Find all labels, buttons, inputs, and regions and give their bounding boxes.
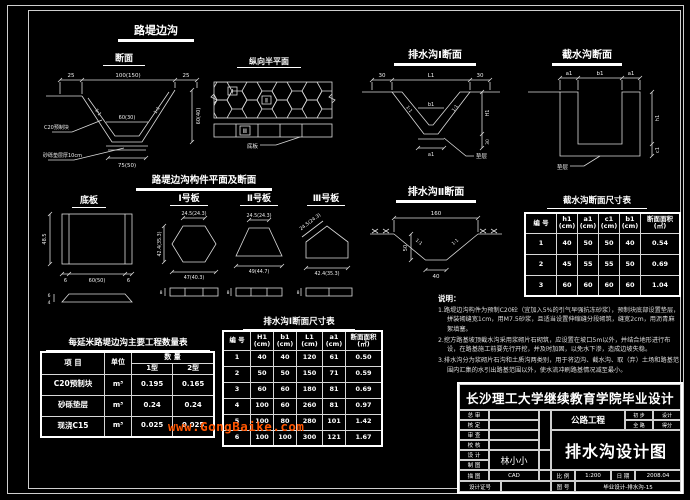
cell: 40	[557, 233, 578, 254]
cell: 0.195	[132, 374, 173, 395]
table-row: 36060180810.69	[223, 382, 382, 398]
drawing-paishuigou1-section: 30 L1 30 b1 a1 H1 30 1:1 1:1 垫层	[362, 68, 500, 170]
cell: 2	[223, 366, 251, 382]
tb-cert-value	[501, 481, 551, 492]
cell: 0.54	[641, 233, 681, 254]
table-row: 1405050400.54	[525, 233, 680, 254]
dim-bottom: 42.4(35.3)	[314, 271, 339, 277]
note-item-2: 2.挖方路基坡顶截水沟采用浆砌片石砌筑，应设置在坡口5m以外，并结合地形进行布设…	[438, 336, 680, 355]
title-duanmian: 断面	[103, 54, 145, 66]
cell: 0.69	[346, 382, 383, 398]
cell: 71	[323, 366, 346, 382]
dim-depth: 50	[403, 245, 409, 251]
cell: 120	[297, 350, 323, 366]
dim-top-right: 30	[477, 73, 484, 79]
cell: 0.50	[346, 350, 383, 366]
col-header: b1 (cm)	[620, 213, 641, 233]
cell: 81	[323, 398, 346, 414]
dim-sec: 8	[227, 290, 230, 296]
col-header: a1 (cm)	[323, 331, 346, 350]
tb-stage-value-1: 设计	[653, 410, 681, 420]
dim-bottom: 75(50)	[118, 163, 136, 169]
dim-height: 60(40)	[196, 108, 202, 125]
tb-date-label: 日 期	[611, 470, 635, 481]
label-precast-block: C20预制块	[44, 124, 69, 131]
notes-title: 说明：	[438, 293, 680, 304]
cell: 0.97	[346, 398, 383, 414]
dim-sec2: 4	[48, 300, 51, 306]
cell: 0.24	[173, 395, 214, 416]
title-block: 长沙理工大学继续教育学院毕业设计 总 审 核 定 审 查 校 核 设 计 制 图…	[457, 382, 683, 494]
dim-a1-left: a1	[566, 71, 573, 77]
cell: 81	[323, 382, 346, 398]
dim-h1: h1	[655, 115, 661, 121]
cell: 55	[599, 254, 620, 275]
tb-scale-label: 比 例	[551, 470, 575, 481]
dim-height-H1: H1	[485, 110, 491, 117]
cell: 150	[297, 366, 323, 382]
dim-top-mid: L1	[428, 73, 435, 79]
col-header: L1 (cm)	[297, 331, 323, 350]
dim-mid: 60(50)	[89, 278, 106, 284]
note-item-3: 3.排水沟分为浆砌片石沟和土质沟两类别，用于将边沟、截水沟、取（弃）土场和路基范…	[438, 356, 680, 375]
cell: 4	[223, 398, 251, 414]
tb-stage-label-2: 全 路	[625, 420, 653, 430]
cell: 50	[620, 254, 641, 275]
watermark-url: www.GongBaike.com	[168, 419, 304, 434]
title-paishuigou2-duanmian: 排水沟Ⅱ断面	[396, 187, 476, 201]
cell: 45	[557, 254, 578, 275]
cell: 40	[274, 350, 297, 366]
note-item-1: 1.路堤边沟构件为预制C20砼（宜加入5%的引气早强抗冻砂浆），预制块底部设置垫…	[438, 306, 680, 334]
col-header: 断面面积 (㎡)	[346, 331, 383, 350]
title-jieshuigou-table: 截水沟断面尺寸表	[547, 197, 647, 209]
dim-c1: c1	[655, 147, 661, 153]
dim-sec: 8	[160, 290, 163, 296]
tb-designer-name: 林小小	[489, 450, 539, 470]
cell: 61	[323, 350, 346, 366]
title-paishuigou1-duanmian: 排水沟Ⅰ断面	[394, 50, 476, 64]
cell: 0.24	[132, 395, 173, 416]
cell: 1	[525, 233, 557, 254]
cell: 现浇C15	[41, 416, 105, 437]
dim-bottom-a1: a1	[428, 152, 434, 158]
notes-block: 说明： 1.路堤边沟构件为预制C20砼（宜加入5%的引气早强抗冻砂浆），预制块底…	[438, 293, 680, 375]
dim-top-mid: 100(150)	[115, 73, 140, 79]
tb-label-sheji: 设 计	[459, 450, 489, 460]
cell: 0.165	[173, 374, 214, 395]
cell: m³	[105, 374, 132, 395]
tb-label-heding: 核 定	[459, 420, 489, 430]
table-row: 14040120610.50	[223, 350, 382, 366]
label-gravel-bed: 砂砾垫层厚10cm	[43, 152, 82, 159]
tb-no-value: 毕业设计-排水沟-15	[575, 481, 681, 492]
cell: 40	[620, 233, 641, 254]
col-header-item: 项 目	[41, 352, 105, 374]
drawing-ban1: 24.5(24.3) 42.4(35.3) 47(40.3) 8	[158, 206, 222, 306]
tb-value-empty-1	[489, 410, 539, 420]
tb-value-empty-2	[489, 420, 539, 430]
tb-spare-col-top	[539, 410, 551, 450]
title-quantity-table: 每延米路堤边沟主要工程数量表	[46, 339, 210, 351]
tb-date-value: 2008.04	[635, 470, 681, 481]
cell: 0.025	[132, 416, 173, 437]
title-goujian-pingmian: 路堤边沟构件平面及断面	[136, 176, 272, 189]
cell: 2	[525, 254, 557, 275]
dim-bottom: 40	[433, 274, 440, 280]
tb-cad-value: CAD	[489, 470, 539, 481]
tb-spare-col-mid	[539, 450, 551, 470]
leader-bedding: 垫层	[476, 152, 488, 160]
title-paishuigou1-table: 排水沟Ⅰ断面尺寸表	[243, 318, 355, 330]
dim-left6: 6	[64, 278, 67, 284]
cell: 50	[599, 233, 620, 254]
cell: 50	[578, 233, 599, 254]
dim-b1: b1	[597, 71, 604, 77]
tb-no-label: 图 号	[551, 481, 575, 492]
col-header-qty: 数 量	[132, 352, 215, 363]
dim-bottom: 47(40.3)	[184, 275, 205, 281]
col-header: 断面面积 (㎡)	[641, 213, 681, 233]
cell: 1.42	[346, 414, 383, 430]
dim-a1-right: a1	[628, 71, 635, 77]
cell: 3	[223, 382, 251, 398]
cell: 40	[251, 350, 274, 366]
col-header: H1 (cm)	[251, 331, 274, 350]
drawing-sheet: 路堤边沟 断面 纵向半平面 排水沟Ⅰ断面 截水沟断面 路堤边沟构件平面及断面 底…	[0, 0, 690, 500]
table-row: 25050150710.59	[223, 366, 382, 382]
cell: 260	[297, 398, 323, 414]
dim-height: 48.5	[42, 233, 48, 244]
dim-bottom: 49(44.7)	[249, 269, 270, 275]
title-jieshuigou-duanmian: 截水沟断面	[552, 50, 622, 64]
cell: 60	[274, 382, 297, 398]
table-row: 410060260810.97	[223, 398, 382, 414]
table-row: 2455555500.69	[525, 254, 680, 275]
title-luti-biangou: 路堤边沟	[118, 25, 194, 40]
slope-left: 1:1	[414, 238, 424, 247]
cell: 0.69	[641, 254, 681, 275]
dim-top: 24.5(24.3)	[181, 211, 206, 217]
plan-marker-1: Ⅰ	[232, 89, 234, 96]
cell: 60	[274, 398, 297, 414]
dim-height-2: 30	[485, 139, 491, 145]
tb-label-miaotu: 描 图	[459, 470, 489, 481]
tb-stage-label-1: 初 步	[625, 410, 653, 420]
dim-top: 24.5(24.3)	[246, 213, 271, 219]
dim-top: 160	[431, 211, 442, 217]
plan-marker-2: Ⅱ	[265, 98, 268, 105]
slope-right: 1:1	[451, 238, 461, 247]
dim-top-left: 25	[68, 73, 75, 79]
tb-label-shencha: 审 查	[459, 430, 489, 440]
drawing-ban2: 24.5(24.3) 49(44.7) 8	[228, 206, 290, 306]
dim-inner: 60(30)	[119, 115, 136, 121]
drawing-luti-biangou-plan: Ⅰ Ⅱ Ⅲ 底板	[210, 80, 338, 150]
title-ban2: Ⅱ号板	[240, 194, 278, 206]
cell: m³	[105, 416, 132, 437]
tb-value-empty-4	[489, 440, 539, 450]
dim-top: 24.5(24.3)	[299, 212, 323, 232]
plan-leader-diban: 底板	[247, 142, 259, 150]
cell: 50	[274, 366, 297, 382]
table-row: C20预制块m³0.1950.165	[41, 374, 214, 395]
tb-scale-value: 1:200	[575, 470, 611, 481]
col-header-type2: 2型	[173, 363, 214, 374]
plan-marker-3: Ⅲ	[243, 128, 247, 135]
col-header: c1 (cm)	[599, 213, 620, 233]
cell: 1	[223, 350, 251, 366]
tb-project: 公路工程	[551, 410, 625, 430]
leader-bedding: 垫层	[557, 163, 569, 171]
cell: 50	[251, 366, 274, 382]
dim-top-left: 30	[379, 73, 386, 79]
col-header-unit: 单位	[105, 352, 132, 374]
drawing-luti-biangou-section: 25 100(150) 25 60(30) 75(50) 60(40) 1:1 …	[42, 66, 210, 172]
cell: 121	[323, 430, 346, 446]
cell: 0.59	[346, 366, 383, 382]
jieshuigou-dimension-table: 编 号 h1 (cm) a1 (cm) c1 (cm) b1 (cm) 断面面积…	[524, 212, 681, 297]
dim-top-right: 25	[183, 73, 190, 79]
dim-right6: 6	[127, 278, 130, 284]
tb-drawing-title: 排水沟设计图	[551, 430, 681, 470]
tb-spare-col-bot	[539, 470, 551, 481]
drawing-jieshuigou-section: a1 b1 a1 h1 c1 垫层	[520, 66, 672, 174]
dim-sec: 8	[297, 290, 300, 296]
col-header: a1 (cm)	[578, 213, 599, 233]
drawing-paishuigou2-section: 160 50 1:1 1:1 40	[366, 202, 508, 302]
title-ban1: Ⅰ号板	[170, 194, 208, 206]
cell: 180	[297, 382, 323, 398]
tb-label-zongshen: 总 审	[459, 410, 489, 420]
cell: C20预制块	[41, 374, 105, 395]
title-ban3: Ⅲ号板	[307, 194, 345, 206]
tb-label-zhitu: 制 图	[459, 460, 489, 470]
cell: 1.67	[346, 430, 383, 446]
tb-label-cert: 设计证号	[459, 481, 501, 492]
title-zongxiang-plan: 纵向半平面	[237, 57, 301, 68]
drawing-diban: 48.5 6 60(50) 6 6 4	[40, 206, 142, 306]
dim-inner-b1: b1	[428, 102, 434, 108]
tb-stage-value-2: 得分	[653, 420, 681, 430]
col-header: 编 号	[525, 213, 557, 233]
col-header: b1 (cm)	[274, 331, 297, 350]
dim-sec1: 6	[48, 293, 51, 299]
cell: 101	[323, 414, 346, 430]
col-header: h1 (cm)	[557, 213, 578, 233]
slope-left: 1:1	[404, 105, 413, 115]
cell: 砂砾垫层	[41, 395, 105, 416]
drawing-ban3: 24.5(24.3) 42.4(35.3) 8	[296, 206, 360, 306]
col-header: 编 号	[223, 331, 251, 350]
cell: 100	[251, 398, 274, 414]
tb-label-jiaohe: 校 核	[459, 440, 489, 450]
cell: 55	[578, 254, 599, 275]
slope-right: 1:1	[451, 104, 460, 114]
table-row: 砂砾垫层m³0.240.24	[41, 395, 214, 416]
dim-left: 42.4(35.3)	[157, 231, 163, 256]
cell: m³	[105, 395, 132, 416]
col-header-type1: 1型	[132, 363, 173, 374]
university-title: 长沙理工大学继续教育学院毕业设计	[459, 384, 681, 410]
tb-value-empty-3	[489, 430, 539, 440]
cell: 60	[251, 382, 274, 398]
